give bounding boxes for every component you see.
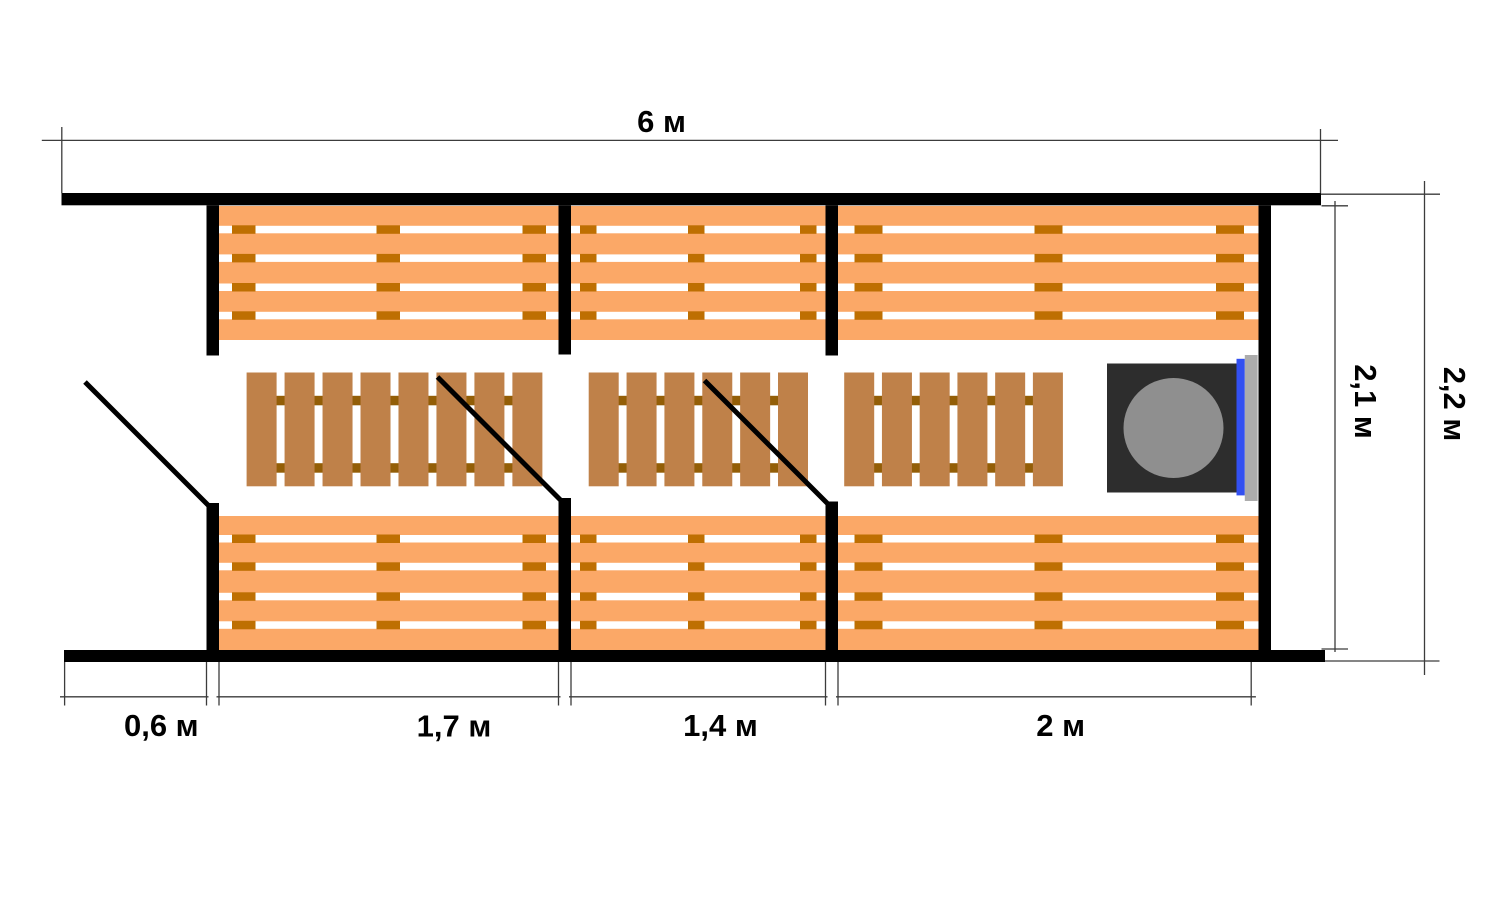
svg-text:0,6 м: 0,6 м <box>124 708 199 743</box>
svg-text:6 м: 6 м <box>637 104 686 139</box>
svg-text:1,7 м: 1,7 м <box>417 708 492 743</box>
svg-text:1,4 м: 1,4 м <box>683 708 758 743</box>
svg-text:2,2 м: 2,2 м <box>1437 367 1472 442</box>
svg-text:2,1 м: 2,1 м <box>1348 364 1383 439</box>
svg-text:2 м: 2 м <box>1036 708 1085 743</box>
